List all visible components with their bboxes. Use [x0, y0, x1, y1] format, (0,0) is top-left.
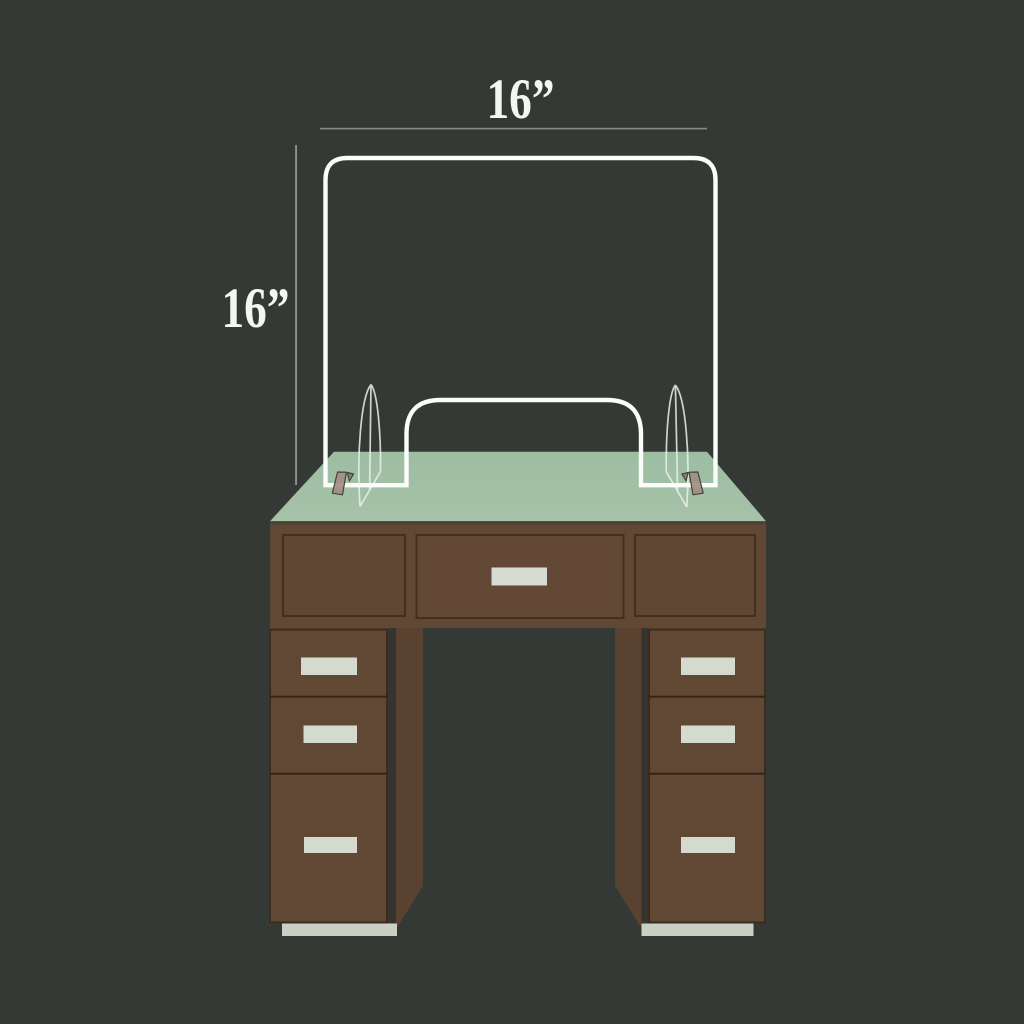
svg-text:16”: 16”	[222, 277, 290, 340]
svg-text:16”: 16”	[487, 68, 555, 131]
